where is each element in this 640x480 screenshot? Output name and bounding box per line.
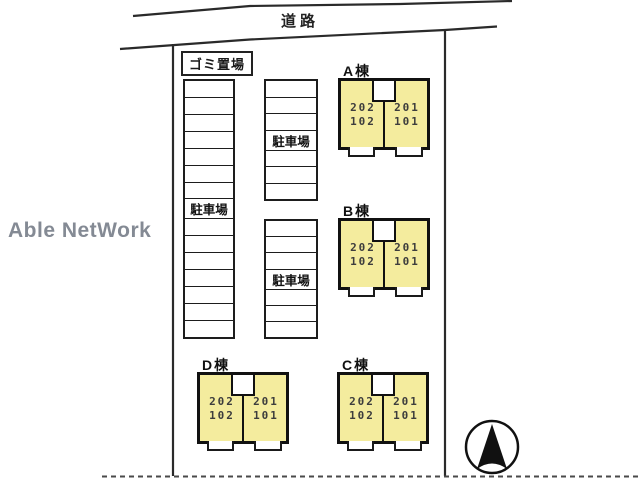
parking-column-left: 駐車場 [183, 79, 235, 339]
unit-number: 201 [391, 395, 419, 409]
north-arrow-compass-icon [466, 421, 518, 473]
parking-column-middle-bottom: 駐車場 [264, 219, 318, 339]
parking-label-cell: 駐車場 [266, 270, 316, 290]
stairwell-notch [372, 81, 396, 102]
road-upper-line [133, 1, 512, 16]
unit-number: 202 [347, 395, 375, 409]
unit-number: 201 [392, 241, 420, 255]
parking-stall [185, 183, 233, 200]
parking-stall [266, 151, 316, 168]
parking-stall [266, 306, 316, 322]
watermark-able-network: Able NetWork [8, 219, 151, 243]
entrance-porch [254, 441, 282, 451]
garbage-area-box: ゴミ置場 [181, 51, 253, 76]
parking-stall [185, 321, 233, 337]
parking-stall [185, 132, 233, 149]
unit-number: 201 [251, 395, 279, 409]
building-d-outline: 202 102 201 101 [197, 372, 289, 444]
building-c: C棟 202 102 201 101 [337, 372, 429, 444]
building-a-outline: 202 102 201 101 [338, 78, 430, 150]
parking-stall [266, 237, 316, 253]
stairwell-notch [371, 375, 395, 396]
unit-number: 202 [207, 395, 235, 409]
unit-number: 101 [391, 409, 419, 423]
parking-stall [266, 221, 316, 237]
unit-number: 202 [348, 241, 376, 255]
parking-stall [185, 149, 233, 166]
parking-stall [185, 236, 233, 253]
unit-number: 101 [392, 255, 420, 269]
parking-stall [266, 98, 316, 115]
parking-stall [185, 270, 233, 287]
unit-number: 101 [392, 115, 420, 129]
parking-stall [266, 114, 316, 131]
unit-number: 102 [207, 409, 235, 423]
parking-label-cell: 駐車場 [185, 199, 233, 219]
parking-stall [185, 98, 233, 115]
entrance-porch [395, 287, 423, 297]
parking-label-cell: 駐車場 [266, 131, 316, 151]
entrance-porch [395, 147, 423, 157]
parking-stall [185, 253, 233, 270]
building-b-outline: 202 102 201 101 [338, 218, 430, 290]
site-plan: 道路 Able NetWork ゴミ置場 駐車場 駐車場 駐車場 A棟 202 … [0, 0, 640, 480]
parking-stall [266, 184, 316, 200]
parking-stall [266, 167, 316, 184]
entrance-porch [348, 287, 375, 297]
unit-number: 201 [392, 101, 420, 115]
building-d: D棟 202 102 201 101 [197, 372, 289, 444]
parking-stall [185, 304, 233, 321]
entrance-porch [348, 147, 375, 157]
parking-stall [266, 81, 316, 98]
parking-column-middle-top: 駐車場 [264, 79, 318, 201]
stairwell-notch [231, 375, 255, 396]
parking-stall [185, 166, 233, 183]
building-c-outline: 202 102 201 101 [337, 372, 429, 444]
stairwell-notch [372, 221, 396, 242]
unit-number: 102 [347, 409, 375, 423]
building-b: B棟 202 102 201 101 [338, 218, 430, 290]
building-a: A棟 202 102 201 101 [338, 78, 430, 150]
parking-stall [185, 287, 233, 304]
unit-number: 202 [348, 101, 376, 115]
parking-stall [185, 219, 233, 236]
unit-number: 102 [348, 255, 376, 269]
parking-stall [185, 81, 233, 98]
entrance-porch [394, 441, 422, 451]
entrance-porch [347, 441, 374, 451]
parking-stall [266, 322, 316, 337]
unit-number: 102 [348, 115, 376, 129]
parking-stall [185, 115, 233, 132]
road-label: 道路 [281, 10, 319, 31]
unit-number: 101 [251, 409, 279, 423]
entrance-porch [207, 441, 234, 451]
parking-stall [266, 253, 316, 269]
parking-stall [266, 290, 316, 306]
